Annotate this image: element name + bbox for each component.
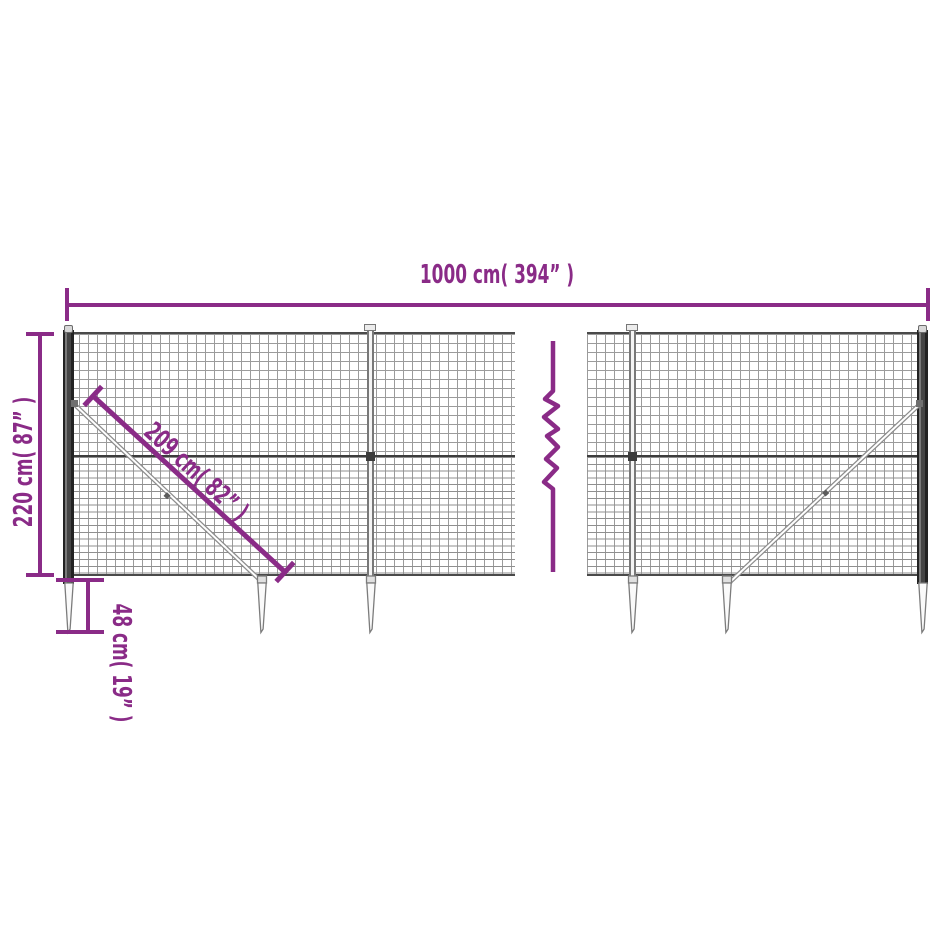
diagram-overlay	[0, 0, 947, 947]
spike-socket	[258, 576, 267, 583]
label-total-width: 1000 cm( 394” )	[400, 260, 595, 290]
label-spike-depth: 48 cm( 19” )	[106, 592, 136, 735]
spike-socket	[367, 576, 376, 583]
brace-fitting	[916, 400, 923, 407]
spike-socket	[723, 576, 732, 583]
brace-fitting	[71, 400, 78, 407]
dimension-spike-depth	[56, 580, 104, 632]
ground-spike	[65, 583, 73, 633]
ground-spike	[629, 583, 637, 633]
ground-spike	[919, 583, 927, 633]
label-total-height: 220 cm( 87” )	[9, 365, 39, 560]
ground-spike	[258, 583, 266, 633]
dimension-total-width	[67, 288, 928, 321]
spike-socket	[629, 576, 638, 583]
ground-spikes	[65, 576, 927, 633]
ground-spike	[723, 583, 731, 633]
support-brace-right	[730, 400, 923, 582]
ground-spike	[367, 583, 375, 633]
break-zigzag-symbol	[544, 341, 558, 572]
fence-dimension-diagram: 1000 cm( 394” ) 220 cm( 87” ) 209 cm( 82…	[0, 0, 947, 947]
